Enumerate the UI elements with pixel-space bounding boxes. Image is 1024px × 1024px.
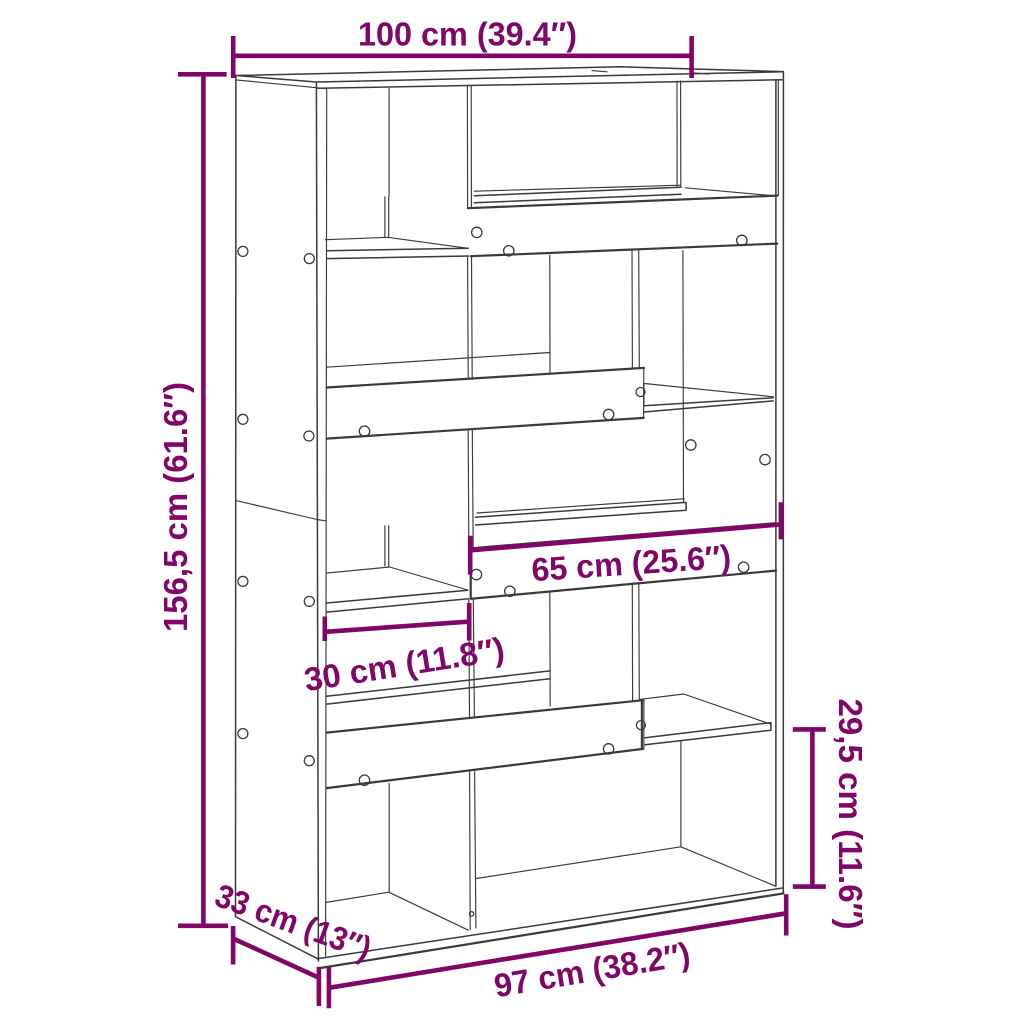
svg-text:156,5 cm (61.6″): 156,5 cm (61.6″) (157, 382, 194, 632)
svg-text:100 cm (39.4″): 100 cm (39.4″) (358, 15, 577, 52)
svg-text:29,5 cm (11.6″): 29,5 cm (11.6″) (832, 699, 869, 930)
